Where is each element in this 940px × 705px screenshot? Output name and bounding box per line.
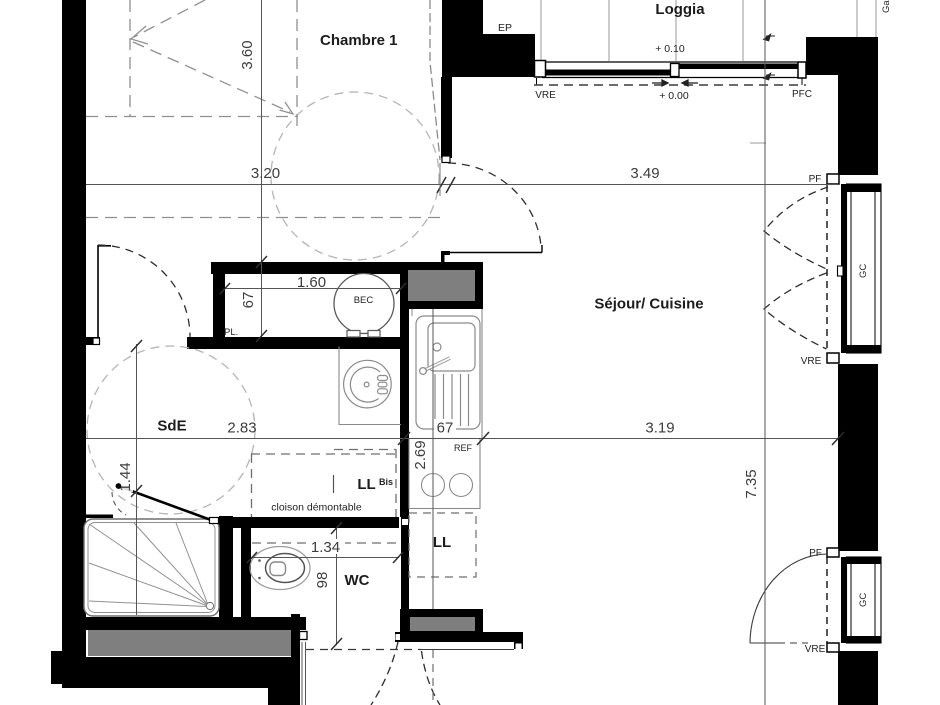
- svg-text:Séjour/ Cuisine: Séjour/ Cuisine: [594, 296, 703, 313]
- svg-text:Chambre 1: Chambre 1: [320, 32, 398, 49]
- svg-text:3.20: 3.20: [251, 165, 280, 182]
- svg-text:7.35: 7.35: [743, 469, 760, 498]
- svg-text:1.34: 1.34: [311, 539, 340, 556]
- svg-text:Loggia: Loggia: [655, 1, 705, 18]
- svg-text:REF: REF: [454, 443, 473, 453]
- svg-text:GC: GC: [858, 593, 869, 607]
- svg-text:VRE: VRE: [805, 644, 826, 655]
- svg-text:VRE: VRE: [801, 356, 822, 367]
- svg-text:VRE: VRE: [535, 90, 556, 101]
- svg-text:67: 67: [240, 292, 257, 309]
- svg-text:+ 0.10: + 0.10: [655, 43, 685, 55]
- svg-text:PF: PF: [809, 174, 822, 185]
- svg-text:2.83: 2.83: [227, 420, 256, 437]
- svg-text:2.69: 2.69: [412, 440, 429, 469]
- svg-text:1.60: 1.60: [297, 274, 326, 291]
- svg-text:3.49: 3.49: [630, 165, 659, 182]
- svg-text:SdE: SdE: [157, 418, 186, 435]
- svg-text:3.60: 3.60: [239, 40, 256, 69]
- svg-text:67: 67: [437, 420, 454, 437]
- svg-text:LL: LL: [433, 534, 451, 551]
- svg-text:Ga: Ga: [881, 0, 892, 13]
- svg-text:PL.: PL.: [224, 327, 238, 338]
- svg-text:LL: LL: [357, 476, 375, 493]
- svg-text:EP: EP: [498, 22, 512, 34]
- svg-text:BEC: BEC: [354, 295, 374, 306]
- svg-text:+ 0.00: + 0.00: [659, 90, 689, 102]
- svg-text:Bis: Bis: [379, 477, 393, 487]
- svg-text:PF: PF: [809, 548, 822, 559]
- svg-text:3.19: 3.19: [645, 420, 674, 437]
- svg-text:98: 98: [314, 572, 331, 589]
- svg-text:GC: GC: [858, 264, 869, 278]
- svg-text:cloison démontable: cloison démontable: [271, 502, 362, 514]
- svg-text:WC: WC: [345, 572, 370, 589]
- svg-text:PFC: PFC: [792, 89, 812, 100]
